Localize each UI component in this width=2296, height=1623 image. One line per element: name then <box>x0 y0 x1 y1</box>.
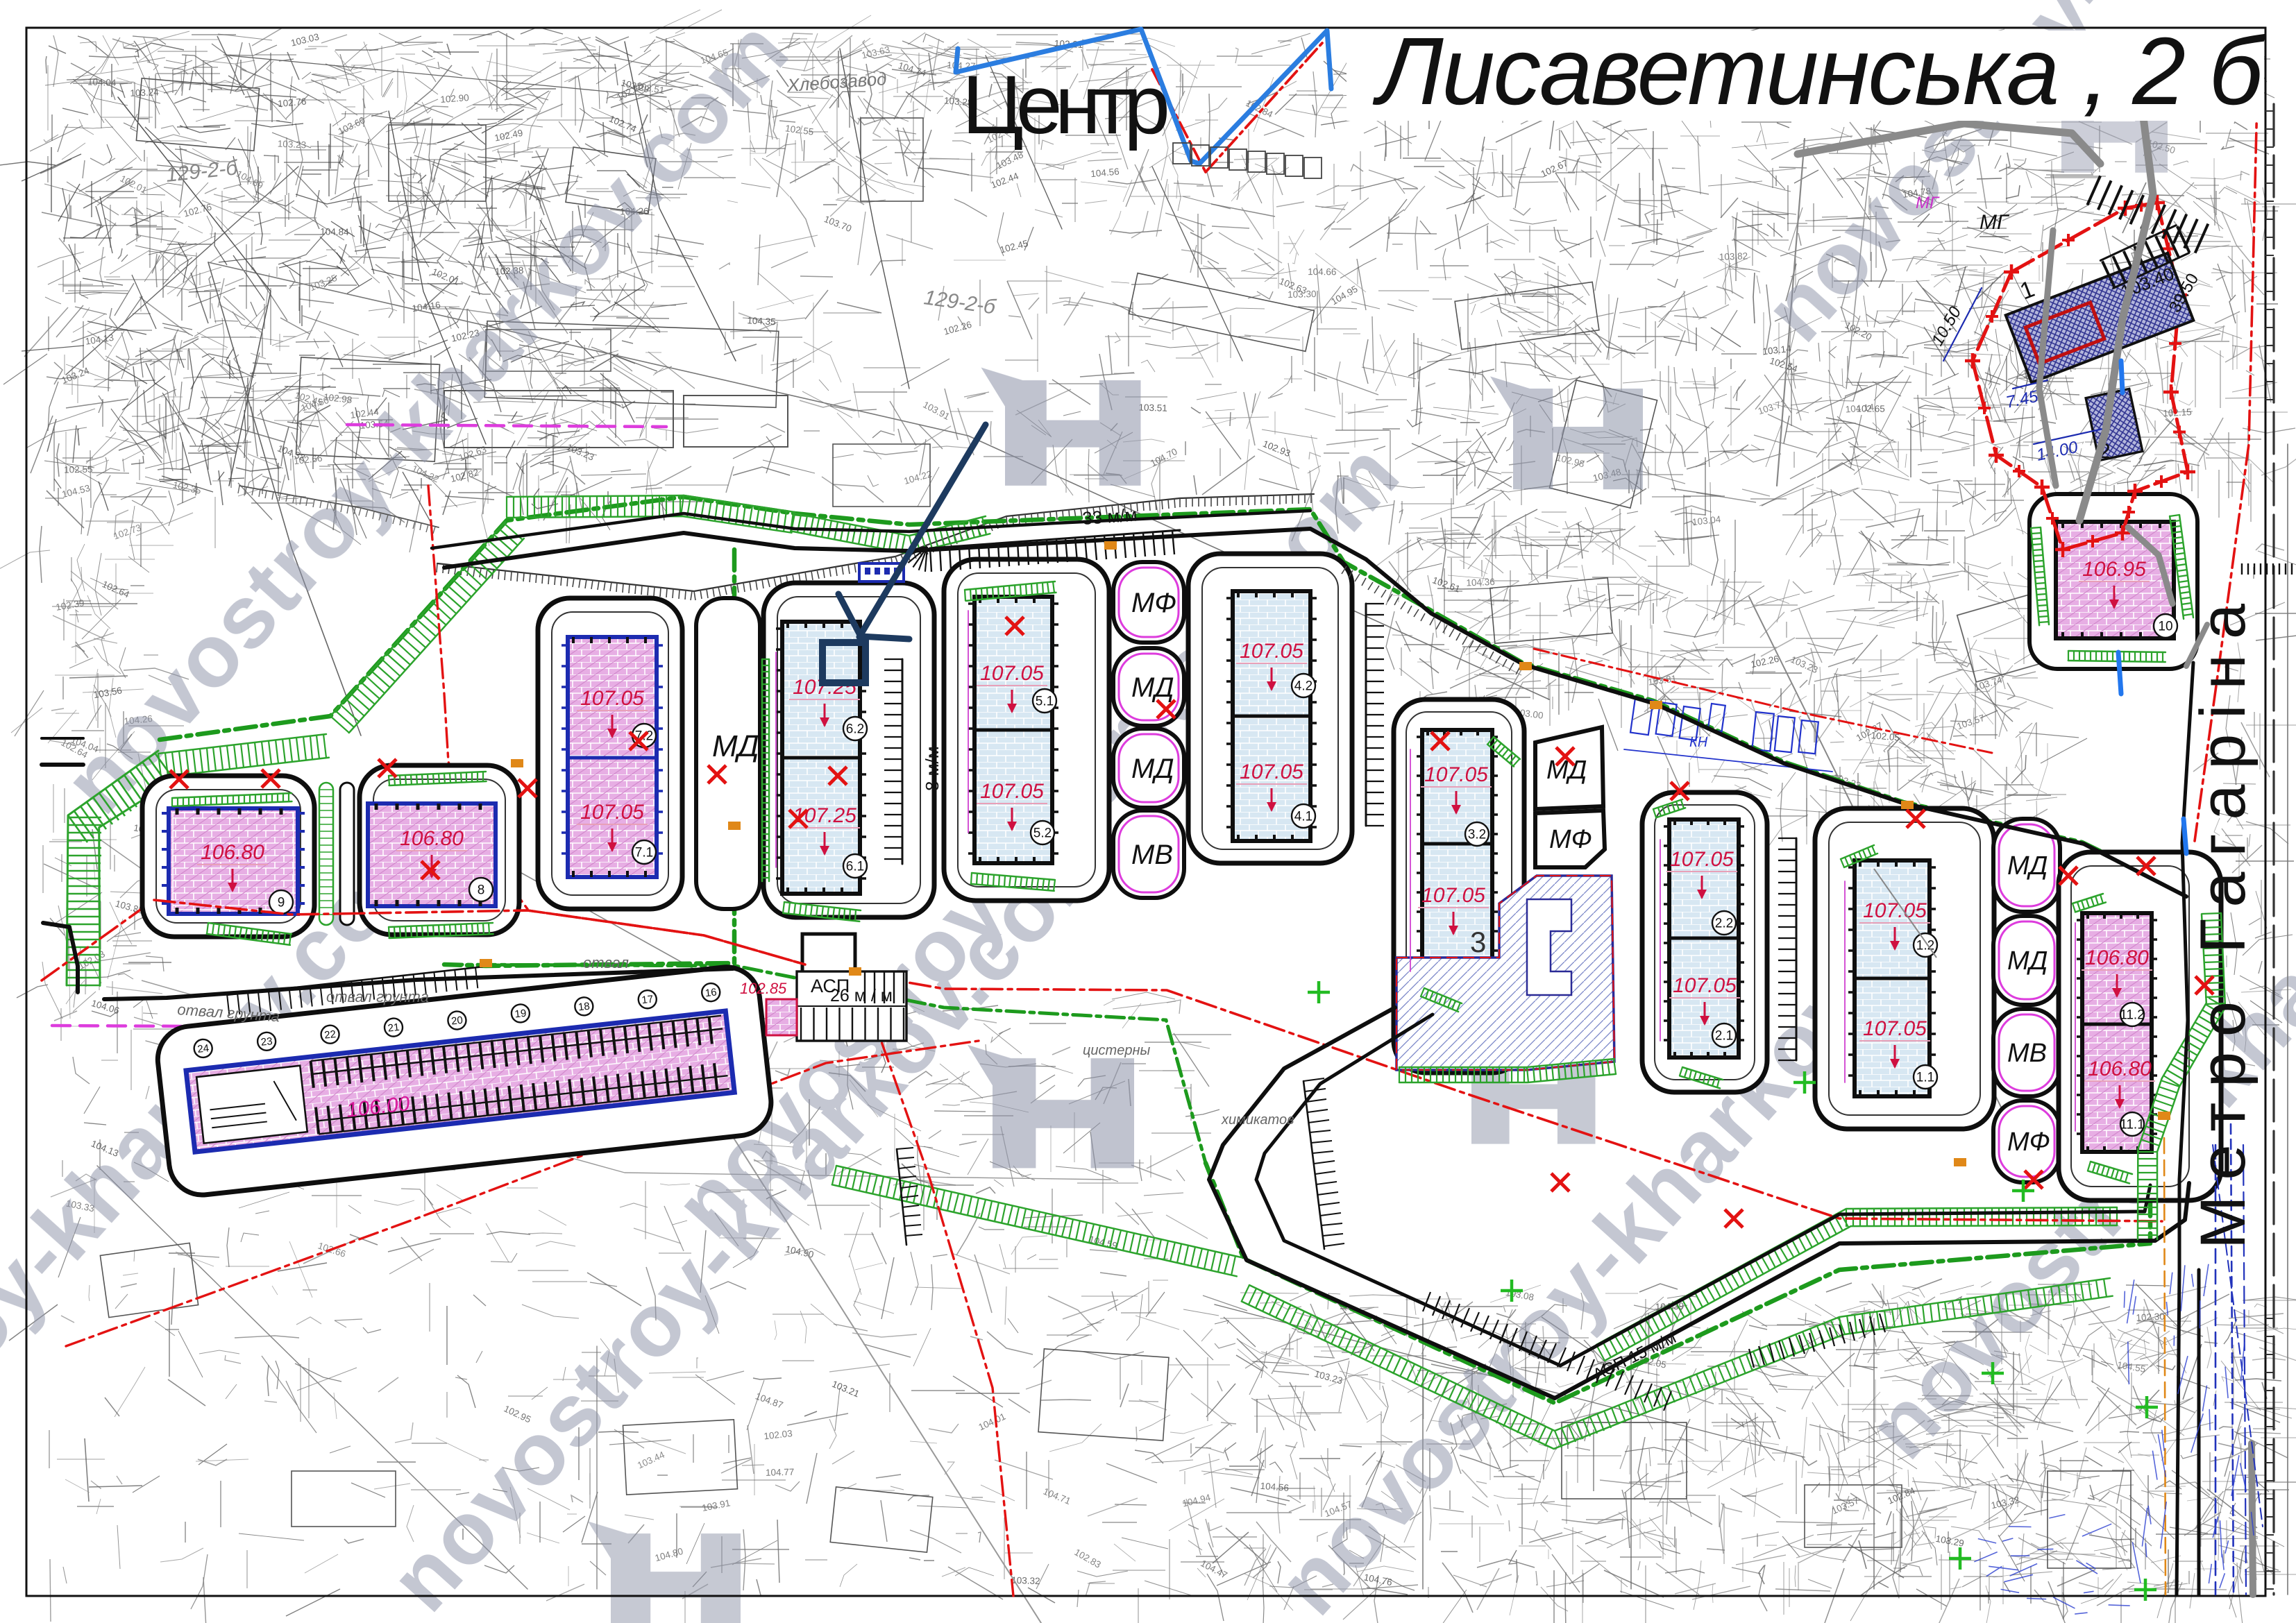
svg-text:107.05: 107.05 <box>980 780 1044 803</box>
svg-text:3: 3 <box>1470 926 1486 958</box>
svg-text:2.2: 2.2 <box>1715 917 1733 931</box>
svg-text:21: 21 <box>387 1021 400 1035</box>
svg-text:107.05: 107.05 <box>1240 760 1303 783</box>
svg-text:106.80: 106.80 <box>201 841 264 864</box>
svg-text:107.05: 107.05 <box>580 801 644 824</box>
svg-text:1.1: 1.1 <box>1916 1071 1934 1085</box>
svg-text:10: 10 <box>2158 620 2172 634</box>
svg-text:104.66: 104.66 <box>1308 266 1336 277</box>
svg-text:104.35: 104.35 <box>747 315 776 327</box>
svg-text:104.84: 104.84 <box>320 226 349 237</box>
svg-text:103.51: 103.51 <box>1138 402 1167 414</box>
svg-text:КН: КН <box>1689 735 1708 750</box>
svg-text:103.30: 103.30 <box>1288 289 1317 300</box>
svg-text:МФ: МФ <box>1131 588 1176 618</box>
svg-text:18: 18 <box>577 1001 590 1014</box>
svg-text:107.05: 107.05 <box>1673 974 1737 997</box>
svg-text:106.80: 106.80 <box>2088 1057 2152 1080</box>
svg-text:102.15: 102.15 <box>2163 407 2192 418</box>
svg-text:МГ: МГ <box>1980 211 2010 234</box>
svg-text:11.1: 11.1 <box>2120 1118 2145 1132</box>
svg-text:20: 20 <box>450 1014 463 1028</box>
svg-text:107.05: 107.05 <box>1863 1017 1927 1040</box>
svg-text:отвал грунта: отвал грунта <box>326 988 429 1005</box>
svg-text:24: 24 <box>197 1042 210 1055</box>
svg-text:104.77: 104.77 <box>766 1467 795 1478</box>
svg-text:химикатов: химикатов <box>1221 1112 1294 1128</box>
svg-text:104.56: 104.56 <box>1260 1481 1289 1493</box>
svg-text:5.1: 5.1 <box>1036 695 1054 709</box>
svg-text:8 м/м: 8 м/м <box>922 746 943 791</box>
svg-text:Лисаветинська , 2 б: Лисаветинська , 2 б <box>1372 18 2265 125</box>
svg-text:23: 23 <box>260 1035 273 1048</box>
svg-text:4.1: 4.1 <box>1294 810 1312 824</box>
svg-text:103.23: 103.23 <box>277 139 306 151</box>
svg-text:103.24: 103.24 <box>130 87 159 98</box>
svg-text:7.1: 7.1 <box>635 846 653 860</box>
svg-text:26 м / м: 26 м / м <box>830 986 893 1005</box>
svg-text:цистерны: цистерны <box>1083 1043 1150 1058</box>
svg-text:104.04: 104.04 <box>87 76 117 88</box>
svg-text:33 м/м: 33 м/м <box>1081 504 1138 529</box>
svg-text:МГ: МГ <box>1916 194 1940 212</box>
svg-text:107.05: 107.05 <box>1424 763 1488 786</box>
svg-text:5.2: 5.2 <box>1033 826 1052 841</box>
svg-text:4.2: 4.2 <box>1294 679 1312 694</box>
svg-text:107.05: 107.05 <box>1240 640 1303 663</box>
svg-text:103.32: 103.32 <box>1011 1575 1040 1586</box>
svg-text:16: 16 <box>704 986 717 999</box>
svg-text:МД: МД <box>712 729 759 763</box>
svg-text:19: 19 <box>514 1008 527 1021</box>
svg-text:102.30: 102.30 <box>2136 1311 2165 1323</box>
svg-text:107.05: 107.05 <box>980 662 1044 685</box>
svg-text:107.05: 107.05 <box>1421 884 1485 907</box>
svg-text:102.90: 102.90 <box>440 92 469 105</box>
svg-text:МФ: МФ <box>1549 825 1592 854</box>
svg-text:102.85: 102.85 <box>740 980 787 997</box>
svg-text:отвал: отвал <box>583 954 629 971</box>
svg-text:106.95: 106.95 <box>2082 558 2146 581</box>
svg-text:103.82: 103.82 <box>1719 250 1748 262</box>
svg-text:107.05: 107.05 <box>1863 899 1927 922</box>
svg-text:104.36: 104.36 <box>1466 577 1495 588</box>
svg-text:МД: МД <box>1131 754 1174 784</box>
svg-text:17: 17 <box>641 994 654 1007</box>
svg-text:102.55: 102.55 <box>64 464 93 475</box>
svg-text:МД: МД <box>2007 851 2048 881</box>
svg-text:11.2: 11.2 <box>2120 1008 2145 1023</box>
svg-text:6.2: 6.2 <box>846 722 864 737</box>
svg-text:107.05: 107.05 <box>1670 848 1734 871</box>
svg-text:МВ: МВ <box>1131 840 1173 870</box>
svg-text:9: 9 <box>278 896 285 910</box>
svg-text:Центр: Центр <box>962 58 1170 151</box>
svg-text:МВ: МВ <box>2007 1039 2047 1068</box>
svg-text:107.05: 107.05 <box>580 687 644 710</box>
svg-text:МД: МД <box>2007 946 2048 976</box>
svg-text:22: 22 <box>323 1028 336 1042</box>
svg-text:106.80: 106.80 <box>2085 946 2149 969</box>
svg-text:6.1: 6.1 <box>846 860 864 874</box>
svg-text:МФ: МФ <box>2007 1128 2050 1157</box>
svg-text:3.2: 3.2 <box>1468 828 1486 842</box>
svg-text:2.1: 2.1 <box>1715 1029 1733 1044</box>
svg-text:8: 8 <box>478 883 485 898</box>
svg-text:МД: МД <box>1131 672 1174 703</box>
svg-text:106.80: 106.80 <box>400 827 464 850</box>
